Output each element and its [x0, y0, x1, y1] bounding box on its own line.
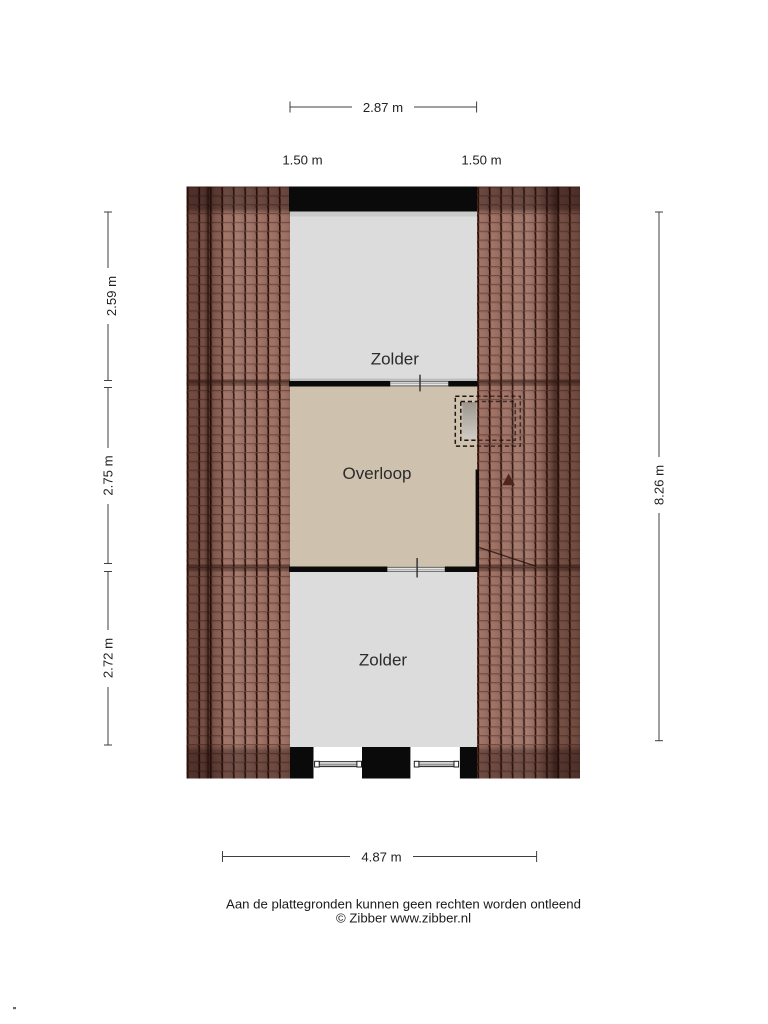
svg-text:1.50 m: 1.50 m	[282, 153, 322, 168]
svg-text:Zolder: Zolder	[359, 651, 408, 670]
svg-text:2.72 m: 2.72 m	[101, 638, 116, 678]
svg-text:Overloop: Overloop	[343, 464, 412, 483]
svg-text:Aan de plattegronden kunnen ge: Aan de plattegronden kunnen geen rechten…	[226, 897, 581, 912]
svg-text:© Zibber www.zibber.nl: © Zibber www.zibber.nl	[336, 911, 471, 926]
svg-text:Zolder: Zolder	[371, 350, 420, 369]
svg-text:2.75 m: 2.75 m	[101, 455, 116, 495]
svg-text:4.87 m: 4.87 m	[361, 850, 401, 865]
svg-text:2.87 m: 2.87 m	[363, 100, 403, 115]
svg-text:2.59 m: 2.59 m	[104, 276, 119, 316]
svg-text:8.26 m: 8.26 m	[652, 465, 667, 505]
svg-text:1.50 m: 1.50 m	[461, 153, 501, 168]
